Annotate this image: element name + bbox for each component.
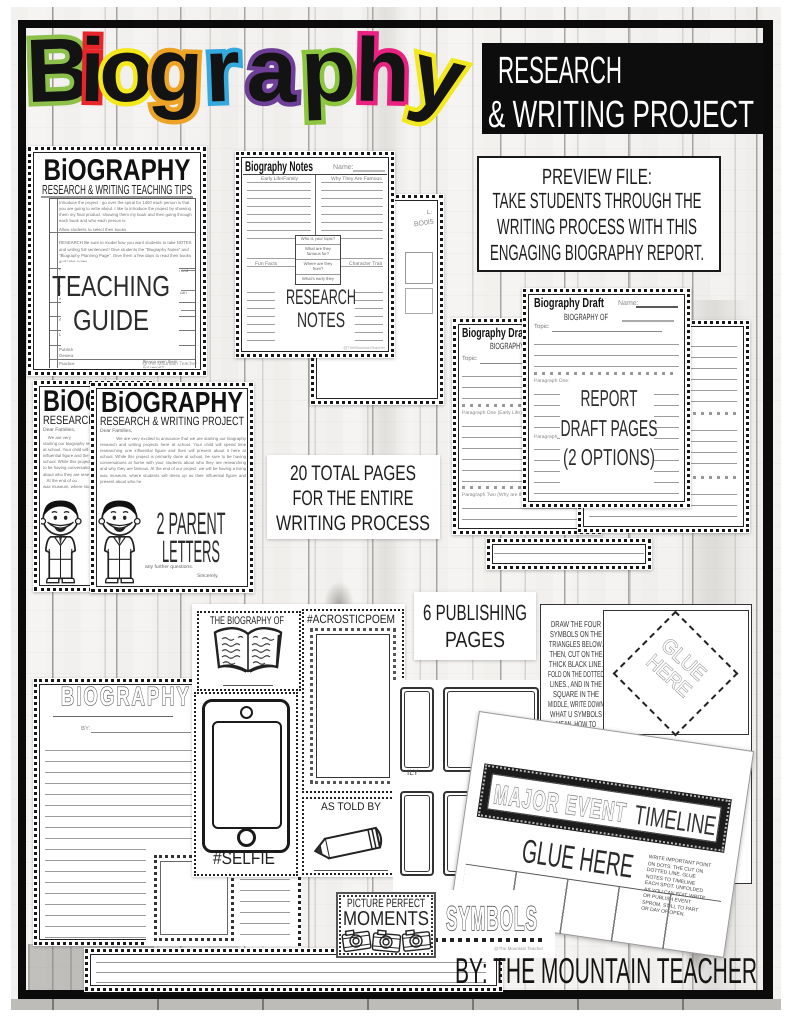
svg-text:TEACHING: TEACHING — [52, 271, 170, 303]
svg-text:DRAFT PAGES: DRAFT PAGES — [561, 415, 658, 441]
svg-text:BIOGRAPHY: BIOGRAPHY — [61, 686, 191, 711]
svg-text:MIDDLE, WRITE DOWN: MIDDLE, WRITE DOWN — [548, 699, 604, 709]
svg-text:TIMELINE: TIMELINE — [633, 800, 718, 842]
svg-text:WRITING PROCESS: WRITING PROCESS — [276, 512, 430, 535]
svg-text:THICK BLACK LINE.: THICK BLACK LINE. — [549, 659, 603, 669]
svg-text:FOR THE ENTIRE: FOR THE ENTIRE — [293, 487, 414, 510]
svg-text:BiOGRAPHY: BiOGRAPHY — [101, 390, 243, 419]
svg-text:#SELFIE: #SELFIE — [213, 848, 275, 868]
svg-text:PREVIEW FILE:: PREVIEW FILE: — [542, 164, 652, 189]
svg-text:BIOGRAPHY OF: BIOGRAPHY OF — [564, 312, 608, 322]
svg-text:TRIANGLES BELOW.: TRIANGLES BELOW. — [549, 639, 603, 649]
svg-text:THEN, CUT ON THE: THEN, CUT ON THE — [550, 649, 603, 659]
svg-text:SYMBOLS: SYMBOLS — [446, 900, 538, 938]
svg-text:NOTES: NOTES — [297, 309, 345, 332]
svg-text:SYMBOLS ON THE: SYMBOLS ON THE — [550, 629, 602, 639]
svg-text:ENGAGING BIOGRAPHY REPORT.: ENGAGING BIOGRAPHY REPORT. — [490, 240, 704, 265]
svg-text:RESEARCH & WRITING PROJECT: RESEARCH & WRITING PROJECT — [100, 414, 244, 428]
svg-text:2 PARENT: 2 PARENT — [157, 506, 226, 541]
svg-text:SQUARE IN THE: SQUARE IN THE — [553, 689, 599, 699]
svg-text:Biography Draf: Biography Draf — [462, 326, 526, 340]
svg-text:THE BIOGRAPHY OF: THE BIOGRAPHY OF — [210, 615, 284, 627]
svg-text:Name:: Name: — [333, 164, 354, 171]
svg-text:#ACROSTICPOEM: #ACROSTICPOEM — [307, 612, 395, 626]
svg-text:Biography Draft: Biography Draft — [534, 296, 604, 310]
svg-text:RESEARCH: RESEARCH — [43, 413, 95, 427]
svg-text:BiOGRAPHY: BiOGRAPHY — [44, 154, 191, 187]
svg-text:6 PUBLISHING: 6 PUBLISHING — [423, 600, 527, 625]
svg-text:RESEARCH: RESEARCH — [286, 286, 356, 309]
svg-text:WHAT U SYMBOLS: WHAT U SYMBOLS — [550, 709, 602, 719]
svg-text:FOLD ON THE DOTTED: FOLD ON THE DOTTED — [548, 669, 604, 679]
svg-text:TAKE STUDENTS THROUGH THE: TAKE STUDENTS THROUGH THE — [493, 188, 702, 213]
svg-text:Biography Notes: Biography Notes — [245, 159, 313, 174]
svg-text:BY: THE MOUNTAIN TEACHER: BY: THE MOUNTAIN TEACHER — [455, 950, 757, 991]
svg-text:LETTERS: LETTERS — [162, 534, 220, 569]
svg-text:& WRITING PROJECT: & WRITING PROJECT — [488, 94, 754, 136]
svg-text:MAJOR EVENT: MAJOR EVENT — [492, 779, 629, 828]
svg-text:WRITING PROCESS WITH THIS: WRITING PROCESS WITH THIS — [497, 214, 697, 239]
svg-text:(2 OPTIONS): (2 OPTIONS) — [563, 444, 655, 470]
svg-text:PAGES: PAGES — [445, 627, 505, 652]
svg-text:20 TOTAL PAGES: 20 TOTAL PAGES — [290, 462, 416, 485]
svg-text:REPORT: REPORT — [581, 385, 638, 411]
svg-text:RESEARCH & WRITING TEACHING TI: RESEARCH & WRITING TEACHING TIPS — [42, 182, 192, 197]
svg-text:Name:: Name: — [618, 300, 639, 307]
svg-text:GUIDE: GUIDE — [73, 305, 149, 337]
svg-text:DRAW THE FOUR: DRAW THE FOUR — [551, 619, 601, 629]
svg-text:RESEARCH: RESEARCH — [498, 50, 622, 92]
svg-text:LINES., AND IN THE: LINES., AND IN THE — [550, 679, 602, 689]
